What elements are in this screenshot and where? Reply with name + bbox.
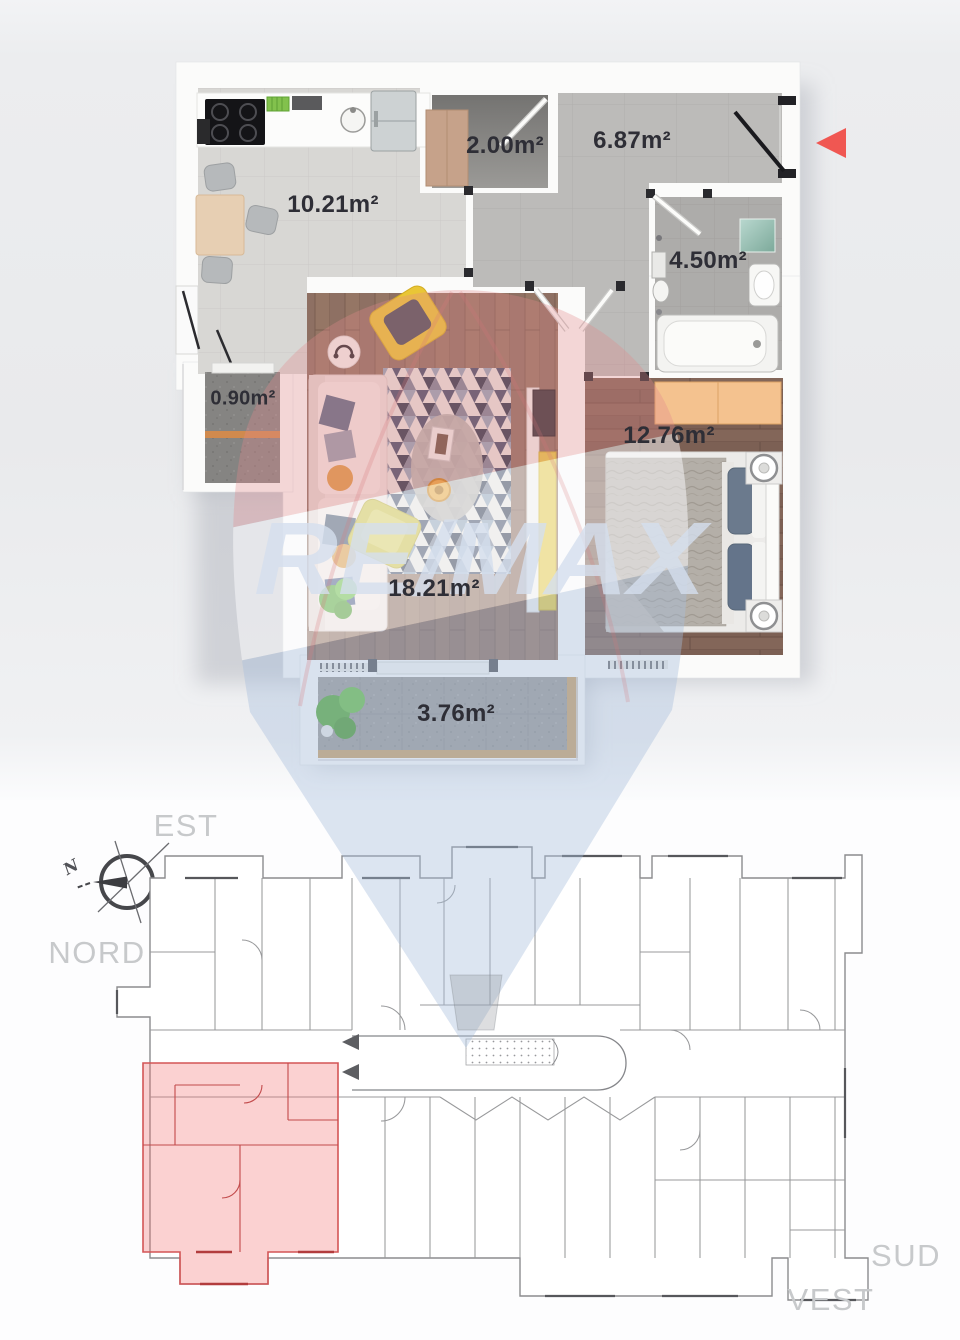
area-label-bedroom: 12.76m² [623, 422, 715, 450]
labels-layer: 10.21m² 2.00m² 6.87m² 4.50m² 0.90m² 18.2… [0, 0, 960, 1340]
area-label-closet: 2.00m² [466, 132, 544, 160]
direction-label-north: NORD [48, 935, 145, 971]
floor-plan-page: RE/MAX 10.21m² 2.00m² 6.87m² 4.50m² 0.90… [0, 0, 960, 1340]
direction-label-east: EST [154, 808, 219, 844]
area-label-north-balcony: 0.90m² [210, 388, 275, 411]
area-label-bathroom: 4.50m² [669, 247, 747, 275]
compass-north-label: N [60, 855, 82, 879]
direction-label-south: SUD [871, 1238, 941, 1274]
area-label-hallway: 6.87m² [593, 127, 671, 155]
area-label-south-balcony: 3.76m² [417, 700, 495, 728]
area-label-living: 18.21m² [388, 575, 480, 603]
area-label-kitchen: 10.21m² [287, 191, 379, 219]
direction-label-west: VEST [788, 1282, 875, 1318]
